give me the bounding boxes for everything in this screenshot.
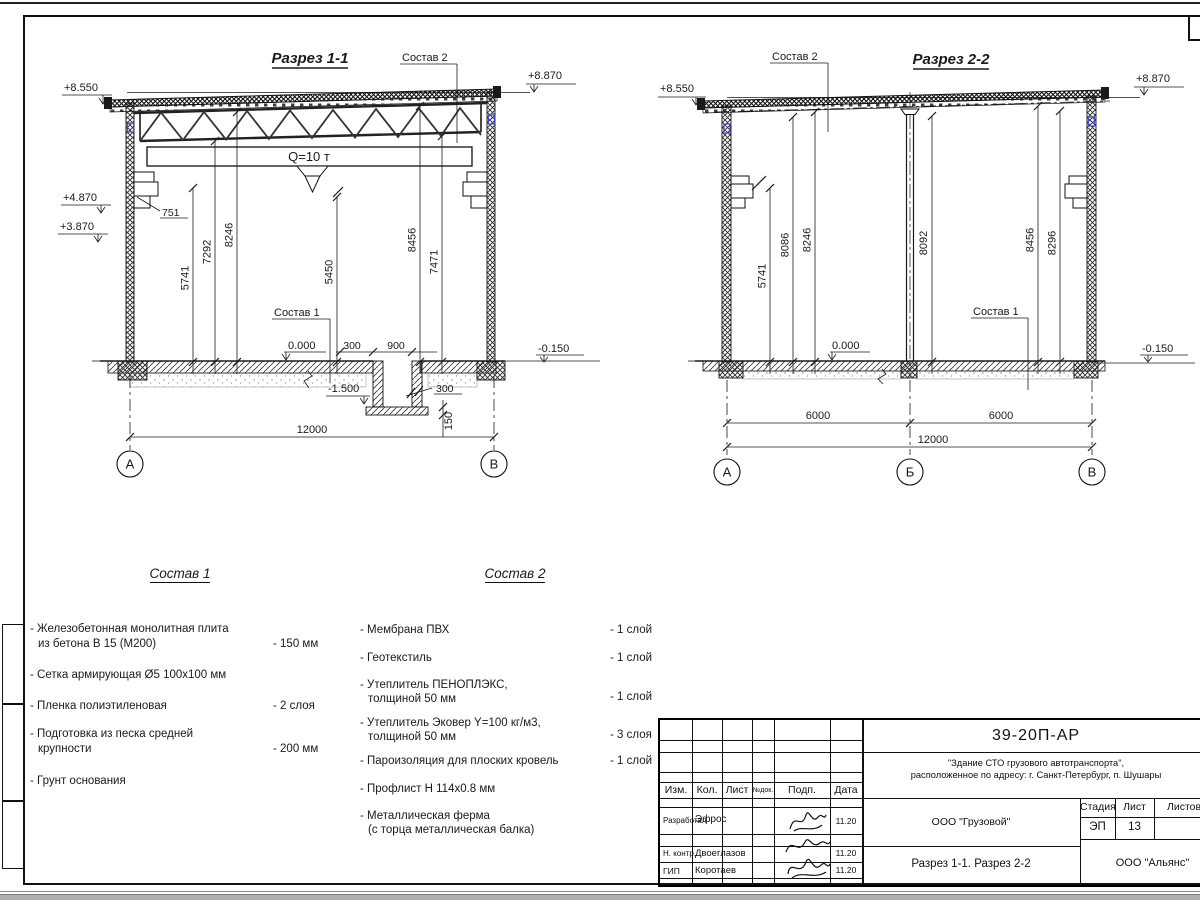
sheets-label: Листов (1154, 801, 1200, 813)
pit (366, 361, 428, 415)
sostav1-list: Состав 1 - Железобетонная монолитная пли… (30, 566, 330, 816)
dim-12000-s2: 12000 (918, 434, 949, 446)
lvl-minus015-s1: -0.150 (538, 343, 569, 355)
sostav1-callout-2: Состав 1 (973, 306, 1019, 318)
crane-trolley (297, 166, 328, 176)
list-item-qty: - 2 слоя (273, 699, 315, 714)
list-item: - Сетка армирующая Ø5 100х100 мм (30, 668, 226, 683)
axes-s2: 6000 6000 12000 А Б В (714, 380, 1105, 485)
sections-drawing: Разрез 1-1 Q=10 т (0, 0, 1200, 560)
list-item: толщиной 50 мм (368, 692, 456, 707)
sheet-label: Лист (1115, 801, 1154, 813)
dim2-8246: 8246 (802, 228, 814, 252)
dim-6000-1: 6000 (806, 410, 830, 422)
dim2-5741: 5741 (757, 264, 769, 288)
stage-label: Стадия (1080, 801, 1115, 813)
axis-bubble-a2: А (723, 465, 732, 480)
list-item: - Пароизоляция для плоских кровель (360, 754, 559, 769)
list-item: - Подготовка из песка средней (30, 727, 193, 742)
middle-column (901, 92, 919, 378)
dim-7471: 7471 (429, 250, 441, 274)
stage-value: ЭП (1080, 821, 1115, 833)
row3-role: ГИП (663, 866, 680, 876)
row3-name: Коротаев (695, 865, 736, 876)
list-item: - Геотекстиль (360, 651, 432, 666)
row1-date: 11.20 (830, 816, 862, 826)
dim-7292: 7292 (202, 240, 214, 264)
signature-1 (786, 805, 828, 835)
drawing-sheet: Разрез 1-1 Q=10 т (0, 0, 1200, 900)
project-line2: расположенное по адресу: г. Санкт-Петерб… (862, 770, 1200, 780)
dim-300b: 300 (436, 383, 454, 395)
dim-8456: 8456 (407, 228, 419, 252)
axis-bubble-v2: В (1088, 465, 1097, 480)
axis-bubble-b: В (490, 457, 499, 472)
crane-corbel-right-2 (1065, 176, 1087, 208)
section-2-2: Разрез 2-2 (658, 51, 1195, 485)
dim-8246: 8246 (224, 223, 236, 247)
crane-corbel-left-2 (731, 176, 753, 208)
section-1-1: Разрез 1-1 Q=10 т (58, 50, 600, 477)
dim-12000-s1: 12000 (297, 424, 328, 436)
dim-5450: 5450 (324, 260, 336, 284)
elev-3870: +3.870 (60, 221, 94, 233)
list-item-qty: - 150 мм (273, 637, 318, 652)
company-name: ООО "Грузовой" (862, 816, 1080, 828)
margin-box-1 (2, 624, 25, 705)
lvl-zero-s1: 0.000 (288, 340, 316, 352)
list-item: - Металлическая ферма (360, 809, 490, 824)
col-podp: Подп. (774, 784, 830, 796)
crane-capacity-label: Q=10 т (288, 149, 330, 164)
lvl-minus015-s2: -0.150 (1142, 343, 1173, 355)
list-item: - Пленка полиэтиленовая (30, 699, 167, 714)
wall-right (487, 92, 495, 362)
margin-box-3 (2, 800, 25, 869)
list-item-qty: - 1 слой (610, 651, 652, 666)
margin-box-2 (2, 703, 25, 802)
elev-8550: +8.550 (64, 82, 98, 94)
sheet-value: 13 (1115, 821, 1154, 833)
dim-5741: 5741 (180, 266, 192, 290)
sostav1-title: Состав 1 (150, 566, 211, 583)
list-item: - Мембрана ПВХ (360, 623, 449, 638)
list-item: из бетона В 15 (М200) (38, 637, 156, 652)
list-item: - Железобетонная монолитная плита (30, 622, 229, 637)
roof-edge-right-2 (1101, 87, 1109, 99)
list-item: - Утеплитель ПЕНОПЛЭКС, (360, 678, 508, 693)
elev-8870: +8.870 (528, 70, 562, 82)
col-izm: Изм. (660, 784, 692, 796)
sostav2-title: Состав 2 (485, 566, 546, 583)
list-item: - Профлист Н 114х0.8 мм (360, 782, 495, 797)
sostav2-callout-2: Состав 2 (772, 51, 818, 63)
floor-s2 (688, 361, 1195, 384)
list-item: - Утеплитель Эковер Y=100 кг/м3, (360, 716, 541, 731)
sostav2-list: Состав 2 - Мембрана ПВХ - 1 слой - Геоте… (360, 566, 670, 846)
dim-300a: 300 (343, 340, 361, 352)
lvl-minus150: -1.500 (328, 383, 359, 395)
crane-hook (305, 176, 320, 192)
col-ndok: №док. (752, 787, 774, 794)
dim-150: 150 (443, 412, 455, 430)
col-data: Дата (830, 784, 862, 796)
content-title: Разрез 1-1. Разрез 2-2 (862, 858, 1080, 870)
page-bottom-edge (0, 891, 1200, 892)
section-2-2-title: Разрез 2-2 (912, 51, 990, 68)
sostav1-callout: Состав 1 (274, 307, 320, 319)
page-bottom-strip (0, 894, 1200, 900)
list-item-qty: - 1 слой (610, 623, 652, 638)
dim2-8086: 8086 (780, 233, 792, 257)
dim-6000-2: 6000 (989, 410, 1013, 422)
row3-date: 11.20 (830, 865, 862, 875)
dim2-8296: 8296 (1047, 231, 1059, 255)
row1-name: Эфрос (695, 814, 727, 825)
wall-right-2 (1087, 96, 1096, 362)
wall-left (126, 103, 134, 362)
vertical-dims-s1: 5741 7292 8246 5450 8456 7471 (180, 102, 447, 374)
list-item: - Грунт основания (30, 774, 126, 789)
col-kol: Кол. (692, 784, 722, 796)
contractor-name: ООО "Альянс" (1080, 857, 1200, 869)
roof-edge-left (104, 97, 112, 109)
doc-number: 39-20П-АР (862, 727, 1200, 745)
roof-edge-left-2 (697, 98, 705, 110)
list-item-qty: - 3 слоя (610, 728, 652, 743)
axis-bubble-a: А (126, 457, 135, 472)
list-item: толщиной 50 мм (368, 730, 456, 745)
signature-2 (780, 834, 832, 882)
dim2-8092: 8092 (918, 231, 930, 255)
list-item: (с торца металлическая балка) (368, 823, 534, 838)
crane-corbel-right (463, 172, 487, 208)
elev-8870-2: +8.870 (1136, 73, 1170, 85)
wall-left-2 (722, 106, 731, 362)
list-item-qty: - 1 слой (610, 754, 652, 769)
project-line1: "Здание СТО грузового автотранспорта", (862, 758, 1200, 768)
elev-4870: +4.870 (63, 192, 97, 204)
list-item-qty: - 1 слой (610, 690, 652, 705)
elev-8550-2: +8.550 (660, 83, 694, 95)
lvl-zero-s2: 0.000 (832, 340, 860, 352)
list-item: крупности (38, 742, 91, 757)
dim-751: 751 (162, 207, 180, 219)
list-item-qty: - 200 мм (273, 742, 318, 757)
dim-900: 900 (387, 340, 405, 352)
section-1-1-title: Разрез 1-1 (271, 50, 348, 67)
axis-bubble-b2: Б (906, 465, 915, 480)
row2-name: Двоеглазов (695, 848, 746, 859)
row2-date: 11.20 (830, 848, 862, 858)
dim2-8456: 8456 (1025, 228, 1037, 252)
sostav2-callout: Состав 2 (402, 52, 448, 64)
row2-role: Н. контр. (663, 849, 696, 858)
col-list: Лист (722, 784, 752, 796)
title-block: Изм. Кол. Лист №док. Подп. Дата Разработ… (658, 718, 1200, 887)
